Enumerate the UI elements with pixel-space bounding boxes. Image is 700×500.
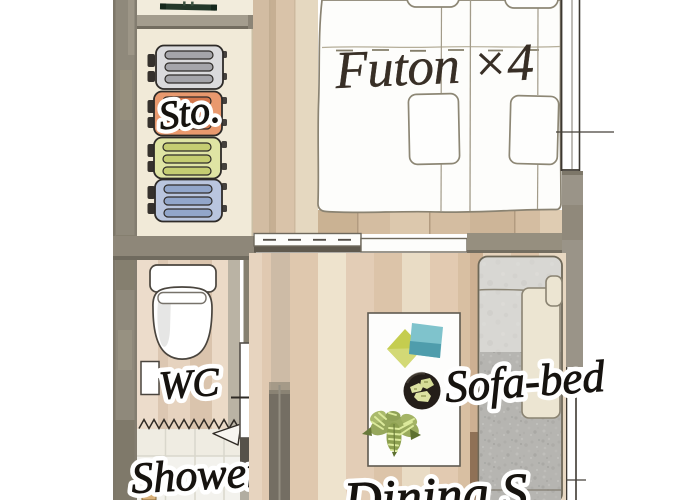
svg-text:Futon ×4: Futon ×4 [333, 33, 534, 100]
svg-text:WC: WC [157, 359, 221, 408]
svg-text:Shower: Shower [130, 447, 265, 500]
svg-text:Sto.: Sto. [156, 85, 223, 138]
